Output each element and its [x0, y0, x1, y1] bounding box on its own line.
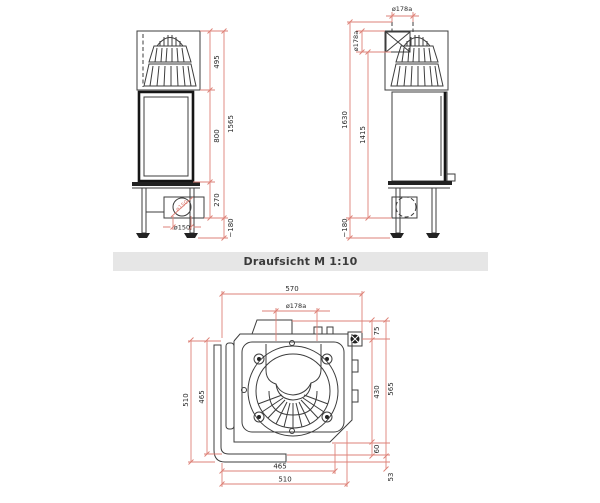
- side-sill: [388, 181, 452, 185]
- side-flue-connector: [386, 32, 410, 52]
- dim-plan-frame-depth: 53: [387, 473, 395, 482]
- dim-front-feet-adjust: ~180: [227, 218, 235, 237]
- dim-side-flue-diameter-rear: ø178a: [352, 31, 360, 51]
- dim-plan-flue-diameter: ø178a: [286, 302, 306, 310]
- front-body: [132, 31, 204, 238]
- side-dimensions: ø178a ø178a 1630 1415 ~180: [341, 5, 419, 241]
- plan-deflector-cowl: [266, 344, 321, 400]
- plan-flue-bolt: [348, 332, 362, 346]
- dim-plan-front-width-outer: 510: [278, 476, 291, 484]
- dim-plan-front-offset: 60: [373, 445, 381, 454]
- dim-side-flue-diameter-top: ø178a: [392, 5, 412, 13]
- dim-side-upper-height: 1415: [359, 126, 367, 144]
- plan-view: 570 ø178a 75 430 60 565 53 465 510 465 5…: [182, 285, 395, 487]
- dim-plan-front-width-inner: 465: [273, 463, 286, 471]
- plan-left-panel: [226, 343, 234, 429]
- front-sill: [132, 182, 200, 186]
- side-legs: [390, 188, 440, 238]
- dim-plan-left-depth-inner: 465: [198, 390, 206, 403]
- front-dimensions: 495 800 270 1565 ~180 ø150 ø150: [163, 29, 235, 241]
- plan-body: [214, 320, 362, 462]
- dim-front-base-height: 270: [213, 193, 221, 206]
- front-dome: [144, 35, 196, 86]
- side-view: ø178a ø178a 1630 1415 ~180: [341, 5, 455, 241]
- dim-plan-left-depth-outer: 510: [182, 393, 190, 406]
- dim-plan-overall-width: 570: [285, 285, 298, 293]
- dim-side-total-height: 1630: [341, 111, 349, 129]
- dim-plan-flue-rear-offset: 75: [373, 327, 381, 336]
- view-caption-bar: Draufsicht M 1:10: [113, 252, 488, 271]
- dim-plan-total-depth: 565: [387, 382, 395, 395]
- dim-front-door-height: 800: [213, 129, 221, 142]
- dim-front-top-section: 495: [213, 55, 221, 68]
- plan-convection-fan: [248, 346, 338, 436]
- dim-front-total-height: 1565: [227, 115, 235, 133]
- front-view: 495 800 270 1565 ~180 ø150 ø150: [132, 29, 235, 241]
- side-body: [385, 22, 455, 238]
- front-door-glass: [139, 92, 193, 181]
- view-caption-label: Draufsicht M 1:10: [244, 255, 358, 268]
- dim-front-intake-diameter: ø150: [174, 224, 190, 232]
- dim-plan-body-depth: 430: [373, 385, 381, 398]
- dim-side-feet-adjust: ~180: [341, 218, 349, 237]
- technical-drawing-page: 495 800 270 1565 ~180 ø150 ø150: [0, 0, 600, 503]
